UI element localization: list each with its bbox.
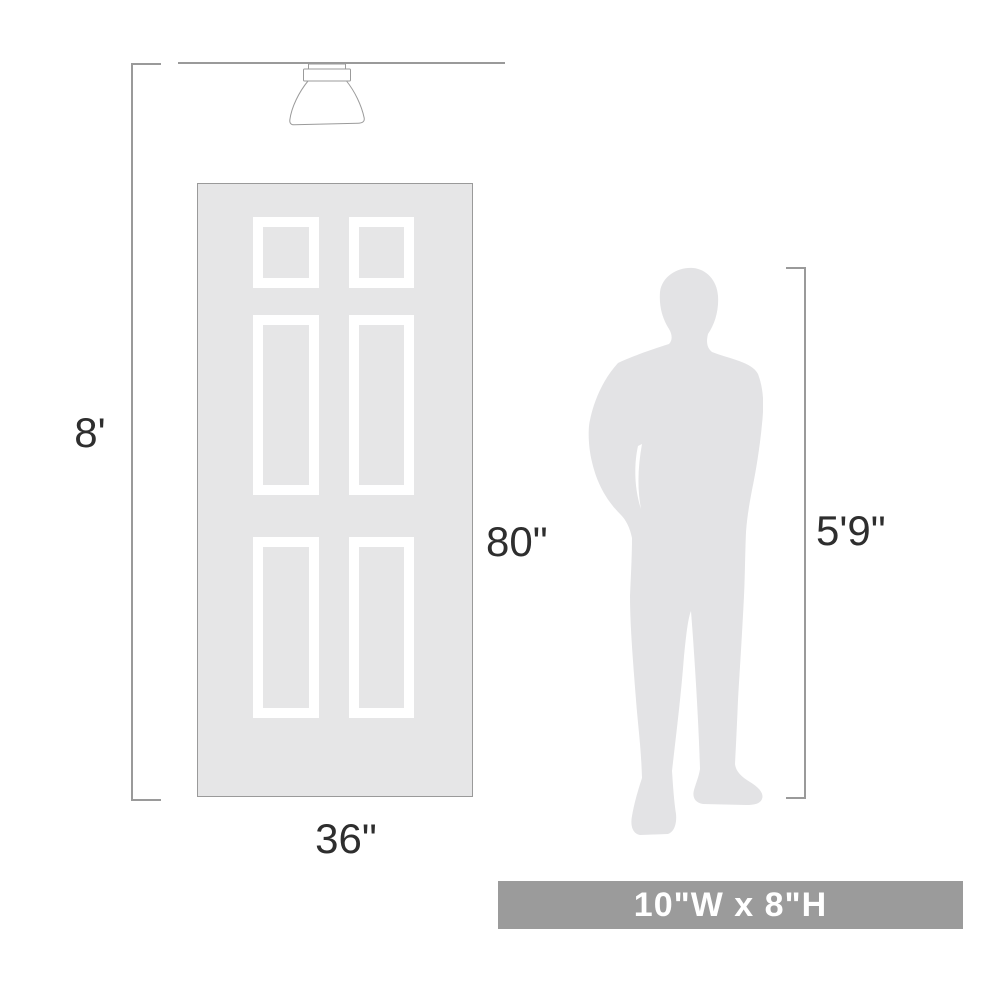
door-panel [349, 315, 414, 495]
door-height-label: 80" [486, 521, 548, 563]
door-panel-inset [263, 325, 309, 485]
fixture-dome-shade [290, 81, 365, 125]
person-height-label: 5'9" [816, 510, 886, 552]
ceiling-height-tick-bottom [131, 799, 161, 801]
ceiling-height-tick-top [131, 63, 161, 65]
person-silhouette-shape [589, 268, 763, 835]
ceiling-height-dimension-line [131, 63, 133, 801]
door-panel-inset [359, 547, 404, 708]
person-height-tick-top [786, 267, 806, 269]
ceiling-light-icon [285, 60, 370, 130]
six-panel-door-icon [197, 183, 473, 797]
door-panel-inset [263, 547, 309, 708]
door-panel [253, 217, 319, 288]
fixture-size-banner: 10"W x 8"H [498, 881, 963, 929]
door-panel [253, 537, 319, 718]
person-height-tick-bottom [786, 797, 806, 799]
person-height-dimension-line [804, 267, 806, 799]
door-panel-inset [359, 325, 404, 485]
door-width-label: 36" [306, 818, 386, 860]
door-panel-inset [359, 227, 404, 278]
fixture-canopy [304, 69, 351, 81]
door-panel [349, 217, 414, 288]
door-panel-inset [263, 227, 309, 278]
person-silhouette-icon [588, 266, 763, 836]
size-comparison-diagram: 8' 80" 36" 5'9" 10"W x 8"H [0, 0, 1000, 1000]
fixture-mounting-plate [309, 64, 346, 69]
door-panel [349, 537, 414, 718]
ceiling-height-label: 8' [60, 412, 120, 454]
fixture-size-text: 10"W x 8"H [634, 886, 827, 925]
door-panel [253, 315, 319, 495]
